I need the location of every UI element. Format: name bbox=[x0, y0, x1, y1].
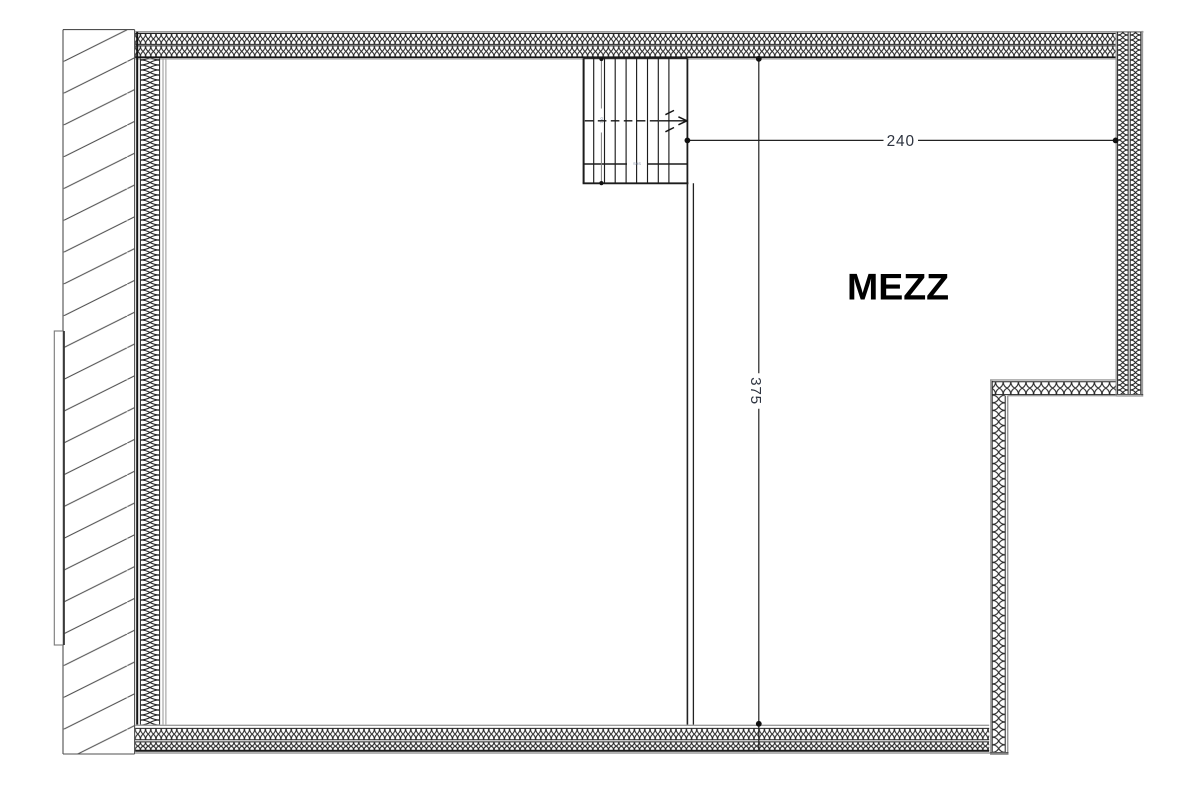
svg-text:SHS: SHS bbox=[633, 162, 641, 166]
svg-text:240: 240 bbox=[887, 133, 915, 150]
svg-text:375: 375 bbox=[747, 377, 764, 405]
svg-text:MEZZ: MEZZ bbox=[847, 266, 949, 308]
